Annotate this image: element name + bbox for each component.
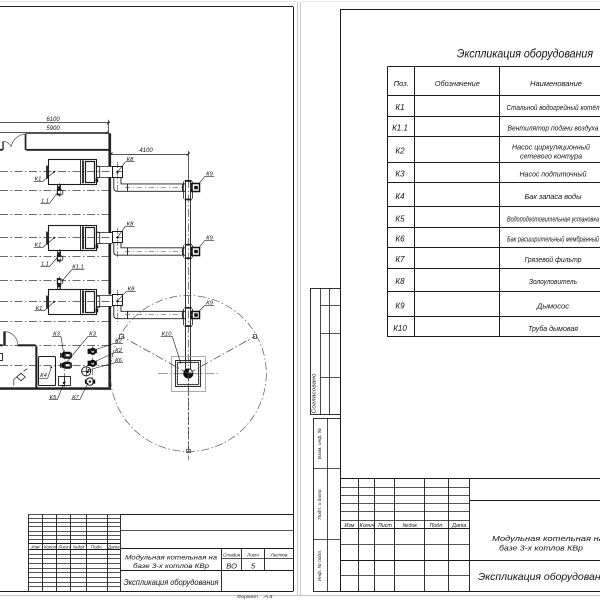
svg-text:К5: К5: [395, 214, 405, 223]
svg-text:6100: 6100: [46, 117, 60, 123]
svg-text:Колич: Колич: [360, 523, 375, 529]
svg-text:Стальной водогрейный котёл: Стальной водогрейный котёл: [507, 103, 600, 112]
svg-text:Стадия: Стадия: [223, 552, 241, 557]
svg-text:К10: К10: [393, 324, 407, 333]
svg-text:Подп.: Подп.: [91, 544, 103, 549]
svg-text:Колич: Колич: [44, 544, 57, 549]
svg-text:Обозначение: Обозначение: [435, 79, 480, 88]
svg-text:Согласовано: Согласовано: [312, 374, 318, 414]
svg-text:Подп.: Подп.: [430, 523, 444, 529]
svg-text:К1: К1: [36, 306, 43, 312]
svg-text:Бак расширительный мембранный: Бак расширительный мембранный: [507, 235, 600, 244]
svg-text:5900: 5900: [46, 126, 60, 132]
svg-text:К7: К7: [72, 395, 79, 401]
svg-text:Экспликация оборудования: Экспликация оборудования: [478, 571, 600, 583]
svg-text:А3: А3: [262, 594, 273, 600]
svg-text:К8: К8: [127, 157, 134, 163]
svg-text:Дымосос: Дымосос: [536, 301, 569, 310]
svg-text:Инф. № подл.: Инф. № подл.: [317, 550, 323, 581]
svg-text:ВО: ВО: [226, 561, 237, 570]
svg-text:Поз.: Поз.: [394, 79, 409, 88]
svg-text:Водоподготовительная установка: Водоподготовительная установка: [507, 214, 599, 223]
svg-text:К8: К8: [395, 277, 405, 286]
svg-text:Взам. инф. №: Взам. инф. №: [317, 428, 323, 459]
svg-text:Изм: Изм: [31, 544, 39, 549]
svg-text:К1.1: К1.1: [392, 124, 408, 133]
svg-text:базе 3-х котлов КВр: базе 3-х котлов КВр: [133, 563, 210, 570]
svg-text:Труба дымовая: Труба дымовая: [528, 324, 578, 333]
svg-text:4100: 4100: [139, 148, 153, 154]
svg-text:Лист: Лист: [246, 552, 259, 557]
svg-text:Золоуловитель: Золоуловитель: [529, 277, 577, 286]
svg-text:К3: К3: [395, 170, 405, 179]
svg-text:Лист: Лист: [377, 523, 392, 529]
svg-text:Насос подпиточный: Насос подпиточный: [520, 170, 588, 179]
svg-text:Подп. и дата: Подп. и дата: [317, 489, 323, 519]
svg-text:Листов: Листов: [270, 552, 288, 557]
svg-text:К1: К1: [395, 103, 404, 112]
svg-text:Насос циркуляционный: Насос циркуляционный: [512, 142, 591, 151]
svg-text:Лист: Лист: [57, 544, 70, 549]
svg-text:Экспликация оборудования: Экспликация оборудования: [457, 48, 593, 60]
svg-text:К7: К7: [395, 255, 405, 264]
svg-text:Дата: Дата: [107, 544, 120, 549]
svg-text:К2: К2: [395, 147, 405, 156]
svg-text:К6: К6: [395, 235, 405, 244]
svg-text:Бак запаса воды: Бак запаса воды: [525, 192, 582, 201]
svg-text:№док: №док: [73, 544, 86, 549]
svg-text:К5: К5: [50, 395, 57, 401]
svg-text:Формат: Формат: [237, 594, 258, 600]
svg-text:базе 3-х котлов КВр: базе 3-х котлов КВр: [499, 544, 583, 552]
svg-text:К9: К9: [395, 301, 405, 310]
svg-text:К2: К2: [115, 348, 122, 354]
svg-text:сетевого контура: сетевого контура: [520, 152, 582, 161]
svg-text:№док: №док: [403, 523, 418, 529]
svg-text:Грязевой фильтр: Грязевой фильтр: [525, 255, 582, 264]
svg-text:Вентилятор подачи воздуха: Вентилятор подачи воздуха: [508, 124, 599, 133]
svg-text:Дата: Дата: [451, 523, 466, 529]
svg-text:К4: К4: [395, 192, 405, 201]
svg-text:Модульная котельная на: Модульная котельная на: [492, 535, 600, 543]
svg-text:К4: К4: [40, 373, 47, 379]
svg-text:Модульная котельная на: Модульная котельная на: [125, 554, 218, 561]
svg-text:Наименование: Наименование: [530, 79, 582, 88]
svg-text:К6: К6: [115, 358, 122, 364]
svg-text:Изм: Изм: [345, 523, 355, 529]
svg-text:Экспликация оборудования: Экспликация оборудования: [124, 578, 220, 587]
